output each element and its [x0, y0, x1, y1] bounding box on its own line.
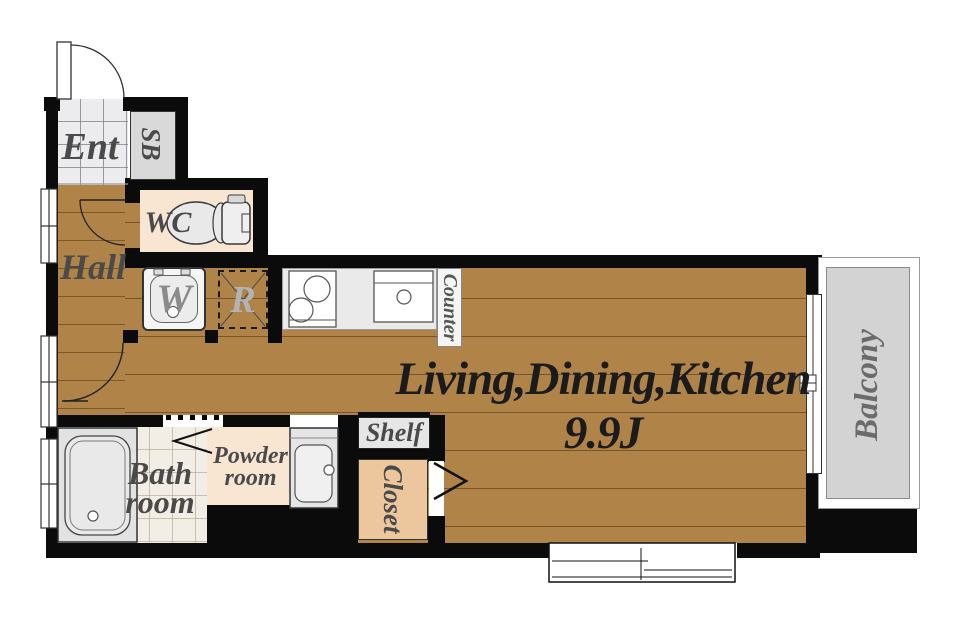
bathroom-label-line2: room [125, 488, 194, 517]
hall-label: Hall [48, 248, 138, 288]
wall-wc-bottom [140, 252, 268, 268]
basin-top-mask [290, 415, 338, 428]
powder-label-line2: room [224, 467, 276, 489]
counter-label: Counter [437, 270, 462, 345]
wall-powder-top [223, 415, 290, 427]
floor-plan: Living,Dining,Kitchen 9.9J Ent SB WC Hal… [0, 0, 960, 622]
wc-label: WC [138, 206, 198, 240]
wall-sb-right [174, 97, 188, 190]
outside-top-mask [268, 80, 828, 255]
closet-label: Closet [363, 464, 423, 534]
wall-top-main [253, 255, 822, 268]
ldk-title: Living,Dining,Kitchen [368, 352, 838, 406]
wall-stub-hall [123, 330, 138, 343]
bottom-window [549, 543, 735, 582]
powder-label-line1: Powder [213, 445, 288, 467]
ldk-size: 9.9J [368, 406, 838, 460]
counter-strip [282, 268, 437, 330]
closet-door-gap [429, 461, 444, 516]
wall-hall-wc-upper [125, 185, 140, 203]
powder-door-gap [163, 415, 223, 427]
washer-label: W [142, 277, 206, 321]
entrance-label: Ent [50, 126, 130, 168]
wall-fridge-right [268, 268, 282, 343]
wall-bath-top [58, 415, 163, 427]
wall-powder-bottom [207, 505, 358, 545]
shoe-box-label: SB [126, 119, 176, 169]
wall-basin-right [338, 415, 358, 508]
fridge-label: R [218, 278, 268, 322]
bathroom-label: Bath room [108, 460, 212, 516]
balcony-label: Balcony [774, 344, 960, 426]
wall-bottom-left [46, 543, 549, 558]
powder-room-label: Powder room [203, 444, 298, 490]
hall-floor [58, 185, 125, 415]
shelf-label: Shelf [358, 419, 430, 447]
wall-closet-right-lower [428, 516, 445, 546]
wall-stub-washer-fridge [205, 330, 218, 343]
